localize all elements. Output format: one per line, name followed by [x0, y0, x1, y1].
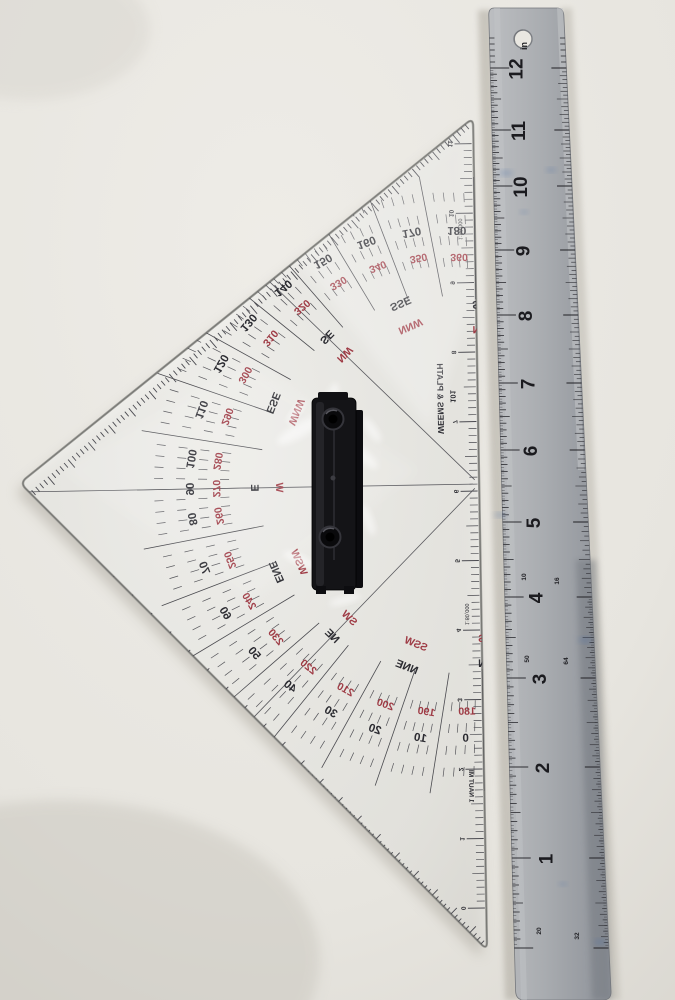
photo-of-protractor-and-ruler: 121110987654321in10165064203201234567891… — [0, 0, 675, 1000]
photo-scene: 121110987654321in10165064203201234567891… — [0, 0, 675, 1000]
